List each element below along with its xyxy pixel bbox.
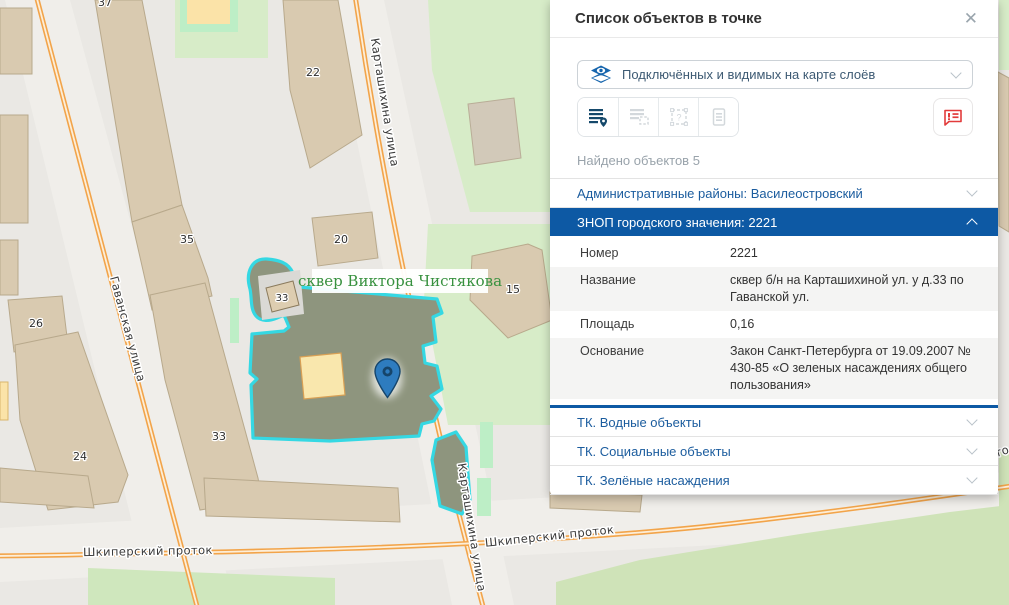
chevron-down-icon	[966, 443, 977, 454]
list-area-icon	[628, 107, 650, 127]
identify-mode-group: ?	[577, 97, 739, 137]
identify-by-point-button[interactable]	[578, 98, 618, 136]
bnum-22: 22	[306, 66, 320, 79]
chevron-down-icon	[966, 414, 977, 425]
accordion-label: ТК. Водные объекты	[577, 415, 701, 430]
map-pin-icon[interactable]	[372, 358, 402, 398]
table-row: Название сквер б/н на Карташихиной ул. у…	[550, 267, 998, 311]
layers-filter-value: Подключённых и видимых на карте слоёв	[622, 67, 942, 82]
layers-eye-icon	[590, 65, 612, 85]
chevron-down-icon	[950, 67, 961, 78]
bnum-20: 20	[334, 233, 348, 246]
close-icon[interactable]: ✕	[962, 8, 980, 29]
bnum-37: 37	[98, 0, 112, 9]
bnum-24: 24	[73, 450, 87, 463]
objects-panel: Список объектов в точке ✕ Подключённых и…	[550, 0, 998, 495]
layers-filter-dropdown[interactable]: Подключённых и видимых на карте слоёв	[577, 60, 973, 89]
accordion-water-objects[interactable]: ТК. Водные объекты	[550, 408, 998, 437]
accordion-label: ТК. Социальные объекты	[577, 444, 731, 459]
chevron-down-icon	[966, 185, 977, 196]
svg-text:?: ?	[676, 113, 681, 123]
document-icon	[710, 107, 728, 127]
row-value: 0,16	[730, 316, 983, 333]
list-point-icon	[587, 107, 609, 127]
identify-question-button[interactable]: ?	[658, 98, 698, 136]
app-window: сквер Виктора Чистякова Гаванская улица …	[0, 0, 1009, 605]
area-label-text: сквер Виктора Чистякова	[298, 272, 502, 290]
accordion-label: ЗНОП городского значения: 2221	[577, 215, 777, 230]
chevron-down-icon	[966, 472, 977, 483]
found-objects-count: Найдено объектов 5	[550, 153, 998, 179]
table-row: Номер 2221	[550, 240, 998, 267]
yellow-building	[300, 353, 345, 399]
accordion-label: Административные районы: Василеостровски…	[577, 186, 863, 201]
table-row: Площадь 0,16	[550, 311, 998, 338]
row-label: Номер	[580, 245, 730, 262]
row-label: Название	[580, 272, 730, 306]
row-value: сквер б/н на Карташихиной ул. у д.33 по …	[730, 272, 983, 306]
row-label: Площадь	[580, 316, 730, 333]
area-question-icon: ?	[669, 107, 689, 127]
panel-title: Список объектов в точке	[575, 10, 962, 27]
object-details-table: Номер 2221 Название сквер б/н на Карташи…	[550, 240, 998, 399]
accordion-social-objects[interactable]: ТК. Социальные объекты	[550, 437, 998, 466]
bnum-35: 35	[180, 233, 194, 246]
accordion-label: ТК. Зелёные насаждения	[577, 473, 730, 488]
report-bubble-icon	[942, 107, 964, 127]
table-row: Основание Закон Санкт-Петербурга от 19.0…	[550, 338, 998, 399]
street-label-shkipersky-left: Шкиперский проток	[83, 543, 213, 559]
bnum-33-street: 33	[212, 430, 226, 443]
report-error-button[interactable]	[933, 98, 973, 136]
accordion-green-plantings[interactable]: ТК. Зелёные насаждения	[550, 466, 998, 495]
row-value: 2221	[730, 245, 983, 262]
chevron-up-icon	[966, 218, 977, 229]
identify-by-area-button[interactable]	[618, 98, 658, 136]
area-label: сквер Виктора Чистякова	[298, 269, 502, 293]
row-value: Закон Санкт-Петербурга от 19.09.2007 № 4…	[730, 343, 983, 394]
document-button[interactable]	[698, 98, 738, 136]
bnum-26: 26	[29, 317, 43, 330]
row-label: Основание	[580, 343, 730, 394]
accordion-admin-districts[interactable]: Административные районы: Василеостровски…	[550, 179, 998, 208]
panel-header: Список объектов в точке ✕	[550, 0, 998, 38]
bnum-15: 15	[506, 283, 520, 296]
toolbar: ?	[577, 97, 973, 137]
accordion-znop[interactable]: ЗНОП городского значения: 2221	[550, 208, 998, 236]
bnum-33-inner: 33	[276, 293, 289, 304]
